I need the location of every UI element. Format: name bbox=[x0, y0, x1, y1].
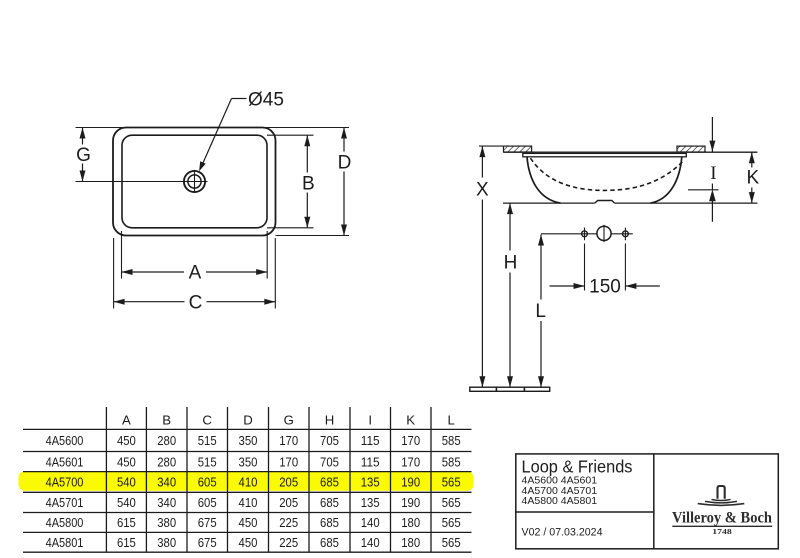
svg-text:565: 565 bbox=[442, 515, 461, 530]
svg-text:L: L bbox=[448, 413, 455, 428]
svg-text:605: 605 bbox=[198, 475, 217, 490]
svg-text:170: 170 bbox=[401, 433, 420, 448]
svg-text:540: 540 bbox=[117, 495, 136, 510]
svg-text:380: 380 bbox=[157, 515, 176, 530]
svg-text:515: 515 bbox=[198, 454, 217, 469]
svg-text:G: G bbox=[76, 145, 91, 166]
svg-text:V02 / 07.03.2024: V02 / 07.03.2024 bbox=[522, 526, 603, 538]
svg-text:150: 150 bbox=[589, 277, 621, 298]
svg-text:350: 350 bbox=[239, 433, 258, 448]
svg-text:Ø45: Ø45 bbox=[248, 90, 284, 111]
svg-text:685: 685 bbox=[320, 495, 339, 510]
svg-text:450: 450 bbox=[117, 433, 136, 448]
svg-text:410: 410 bbox=[239, 495, 258, 510]
svg-text:170: 170 bbox=[279, 433, 298, 448]
svg-text:515: 515 bbox=[198, 433, 217, 448]
svg-text:1748: 1748 bbox=[712, 528, 732, 536]
svg-text:4A5800: 4A5800 bbox=[46, 515, 84, 530]
svg-text:675: 675 bbox=[198, 535, 217, 550]
svg-text:225: 225 bbox=[279, 515, 298, 530]
svg-text:190: 190 bbox=[401, 495, 420, 510]
svg-text:4A5800 4A5801: 4A5800 4A5801 bbox=[522, 496, 598, 507]
svg-text:350: 350 bbox=[239, 454, 258, 469]
svg-text:D: D bbox=[243, 413, 253, 428]
svg-text:I: I bbox=[368, 413, 372, 428]
svg-text:K: K bbox=[406, 413, 415, 428]
svg-text:115: 115 bbox=[361, 454, 380, 469]
svg-text:685: 685 bbox=[320, 475, 339, 490]
svg-text:685: 685 bbox=[320, 515, 339, 530]
svg-text:540: 540 bbox=[117, 475, 136, 490]
svg-text:C: C bbox=[202, 413, 212, 428]
svg-text:180: 180 bbox=[401, 515, 420, 530]
svg-text:410: 410 bbox=[239, 475, 258, 490]
svg-text:115: 115 bbox=[361, 433, 380, 448]
svg-text:C: C bbox=[189, 292, 203, 313]
svg-text:205: 205 bbox=[279, 495, 298, 510]
svg-text:380: 380 bbox=[157, 535, 176, 550]
svg-text:L: L bbox=[535, 301, 546, 322]
svg-text:H: H bbox=[504, 253, 518, 274]
svg-text:705: 705 bbox=[320, 433, 339, 448]
svg-text:565: 565 bbox=[442, 475, 461, 490]
svg-text:135: 135 bbox=[361, 495, 380, 510]
svg-text:B: B bbox=[302, 173, 315, 194]
svg-text:140: 140 bbox=[361, 515, 380, 530]
svg-text:615: 615 bbox=[117, 535, 136, 550]
svg-text:D: D bbox=[338, 152, 352, 173]
svg-text:170: 170 bbox=[279, 454, 298, 469]
svg-text:I: I bbox=[710, 163, 716, 184]
svg-text:450: 450 bbox=[239, 515, 258, 530]
svg-text:280: 280 bbox=[157, 433, 176, 448]
svg-text:Loop & Friends: Loop & Friends bbox=[522, 456, 633, 476]
svg-text:A: A bbox=[122, 413, 131, 428]
svg-text:4A5601: 4A5601 bbox=[46, 454, 84, 469]
svg-text:585: 585 bbox=[442, 454, 461, 469]
svg-text:205: 205 bbox=[279, 475, 298, 490]
svg-text:4A5701: 4A5701 bbox=[46, 495, 84, 510]
svg-text:H: H bbox=[325, 413, 335, 428]
svg-text:Villeroy & Boch: Villeroy & Boch bbox=[672, 510, 772, 527]
svg-text:X: X bbox=[476, 179, 489, 200]
svg-text:B: B bbox=[162, 413, 171, 428]
svg-text:450: 450 bbox=[239, 535, 258, 550]
svg-text:4A5700: 4A5700 bbox=[46, 475, 84, 490]
svg-text:340: 340 bbox=[157, 495, 176, 510]
svg-text:565: 565 bbox=[442, 495, 461, 510]
svg-text:225: 225 bbox=[279, 535, 298, 550]
svg-text:685: 685 bbox=[320, 535, 339, 550]
svg-text:180: 180 bbox=[401, 535, 420, 550]
svg-text:565: 565 bbox=[442, 535, 461, 550]
svg-text:K: K bbox=[746, 167, 759, 188]
svg-text:A: A bbox=[189, 263, 202, 284]
svg-text:G: G bbox=[284, 413, 294, 428]
svg-text:280: 280 bbox=[157, 454, 176, 469]
svg-text:450: 450 bbox=[117, 454, 136, 469]
svg-text:4A5600: 4A5600 bbox=[46, 433, 84, 448]
svg-text:340: 340 bbox=[157, 475, 176, 490]
svg-text:705: 705 bbox=[320, 454, 339, 469]
svg-text:605: 605 bbox=[198, 495, 217, 510]
svg-text:190: 190 bbox=[401, 475, 420, 490]
svg-text:615: 615 bbox=[117, 515, 136, 530]
svg-text:4A5801: 4A5801 bbox=[46, 535, 84, 550]
svg-text:585: 585 bbox=[442, 433, 461, 448]
svg-text:170: 170 bbox=[401, 454, 420, 469]
svg-text:675: 675 bbox=[198, 515, 217, 530]
svg-text:135: 135 bbox=[361, 475, 380, 490]
svg-text:140: 140 bbox=[361, 535, 380, 550]
